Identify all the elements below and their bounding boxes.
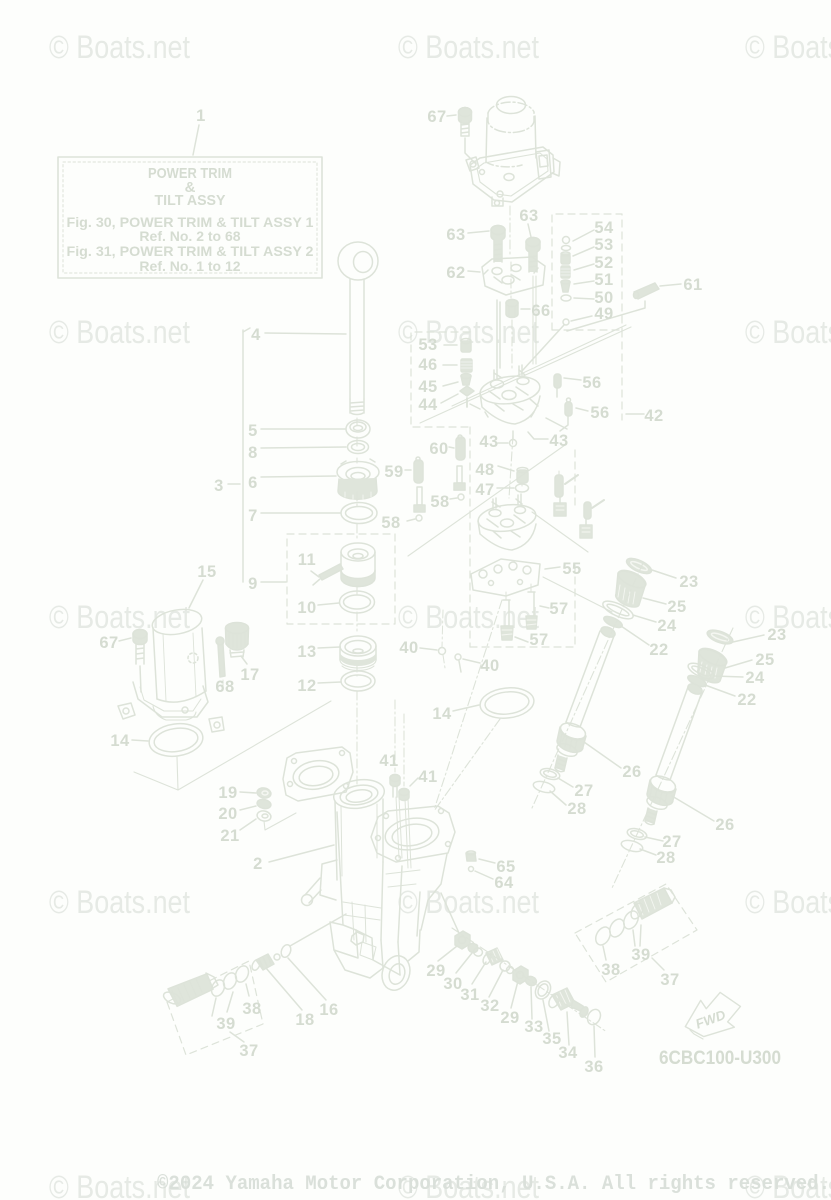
- svg-text:32: 32: [480, 997, 499, 1015]
- svg-text:© Boats.net: © Boats.net: [49, 599, 190, 635]
- svg-text:© Boats.net: © Boats.net: [49, 314, 190, 350]
- svg-text:9: 9: [248, 575, 258, 593]
- svg-text:19: 19: [218, 784, 237, 802]
- svg-text:58: 58: [381, 514, 400, 532]
- svg-text:© Boats.net: © Boats.net: [49, 29, 190, 65]
- svg-text:43: 43: [549, 432, 568, 450]
- svg-text:5: 5: [248, 422, 258, 440]
- svg-text:20: 20: [218, 805, 237, 823]
- svg-text:37: 37: [239, 1042, 258, 1060]
- svg-text:33: 33: [524, 1018, 543, 1036]
- svg-text:63: 63: [519, 207, 538, 225]
- svg-text:© Boats.net: © Boats.net: [745, 599, 831, 635]
- svg-text:42: 42: [644, 407, 663, 425]
- svg-text:67: 67: [427, 108, 446, 126]
- svg-text:34: 34: [558, 1044, 578, 1062]
- svg-text:60: 60: [429, 440, 448, 458]
- svg-text:67: 67: [99, 634, 118, 652]
- svg-text:24: 24: [657, 617, 677, 635]
- svg-text:26: 26: [622, 763, 641, 781]
- svg-text:3: 3: [214, 477, 224, 495]
- svg-text:63: 63: [446, 226, 465, 244]
- svg-text:57: 57: [529, 631, 548, 649]
- svg-text:40: 40: [480, 657, 499, 675]
- svg-text:61: 61: [683, 276, 702, 294]
- svg-text:15: 15: [197, 563, 216, 581]
- svg-text:66: 66: [531, 302, 550, 320]
- svg-text:55: 55: [562, 560, 581, 578]
- svg-text:40: 40: [399, 639, 418, 657]
- svg-text:43: 43: [479, 433, 498, 451]
- svg-text:14: 14: [110, 732, 130, 750]
- svg-text:2: 2: [253, 855, 263, 873]
- svg-text:52: 52: [594, 254, 613, 272]
- svg-text:31: 31: [460, 986, 479, 1004]
- svg-text:23: 23: [679, 573, 698, 591]
- svg-text:© Boats.net: © Boats.net: [398, 599, 539, 635]
- svg-text:62: 62: [446, 264, 465, 282]
- svg-text:56: 56: [582, 374, 601, 392]
- svg-text:27: 27: [574, 782, 593, 800]
- svg-text:38: 38: [601, 961, 620, 979]
- svg-text:48: 48: [475, 461, 494, 479]
- svg-text:39: 39: [631, 946, 650, 964]
- svg-text:11: 11: [298, 551, 316, 569]
- svg-text:©2024 Yamaha Motor Corporation: ©2024 Yamaha Motor Corporation, U.S.A. A…: [157, 1173, 830, 1196]
- svg-text:41: 41: [418, 768, 437, 786]
- svg-text:© Boats.net: © Boats.net: [398, 29, 539, 65]
- svg-text:1: 1: [196, 107, 206, 125]
- svg-text:© Boats.net: © Boats.net: [49, 884, 190, 920]
- svg-text:6CBC100-U300: 6CBC100-U300: [659, 1048, 781, 1069]
- svg-text:10: 10: [297, 599, 316, 617]
- svg-text:41: 41: [379, 752, 398, 770]
- svg-text:23: 23: [767, 626, 786, 644]
- svg-text:© Boats.net: © Boats.net: [745, 884, 831, 920]
- svg-text:17: 17: [240, 666, 259, 684]
- svg-text:18: 18: [295, 1011, 314, 1029]
- svg-text:6: 6: [248, 474, 258, 492]
- svg-text:22: 22: [737, 691, 756, 709]
- svg-text:53: 53: [594, 236, 613, 254]
- svg-text:© Boats.net: © Boats.net: [745, 29, 831, 65]
- svg-text:7: 7: [248, 507, 258, 525]
- svg-text:TILT ASSY: TILT ASSY: [155, 192, 226, 209]
- svg-text:53: 53: [418, 336, 437, 354]
- svg-text:26: 26: [715, 816, 734, 834]
- svg-text:29: 29: [500, 1009, 519, 1027]
- svg-text:24: 24: [745, 669, 765, 687]
- svg-text:44: 44: [418, 396, 438, 414]
- svg-text:39: 39: [216, 1015, 235, 1033]
- svg-text:64: 64: [494, 874, 514, 892]
- svg-text:49: 49: [594, 305, 613, 323]
- svg-text:58: 58: [430, 493, 449, 511]
- svg-text:57: 57: [549, 600, 568, 618]
- svg-text:Ref. No. 2 to 68: Ref. No. 2 to 68: [139, 228, 240, 244]
- svg-text:28: 28: [567, 800, 586, 818]
- svg-text:51: 51: [594, 271, 613, 289]
- svg-text:56: 56: [590, 404, 609, 422]
- svg-text:21: 21: [220, 827, 239, 845]
- svg-text:8: 8: [248, 444, 258, 462]
- svg-text:46: 46: [418, 356, 437, 374]
- svg-text:45: 45: [418, 378, 437, 396]
- svg-text:25: 25: [667, 598, 686, 616]
- svg-text:36: 36: [584, 1058, 603, 1076]
- svg-text:Ref. No. 1 to 12: Ref. No. 1 to 12: [139, 258, 240, 274]
- svg-text:© Boats.net: © Boats.net: [745, 314, 831, 350]
- svg-text:13: 13: [297, 643, 316, 661]
- svg-text:Fig. 31, POWER TRIM & TILT ASS: Fig. 31, POWER TRIM & TILT ASSY 2: [67, 243, 314, 259]
- svg-text:22: 22: [649, 641, 668, 659]
- svg-text:16: 16: [319, 1001, 338, 1019]
- svg-text:54: 54: [594, 219, 614, 237]
- svg-text:14: 14: [432, 705, 452, 723]
- svg-text:28: 28: [656, 849, 675, 867]
- svg-text:37: 37: [660, 971, 679, 989]
- svg-text:59: 59: [384, 463, 403, 481]
- svg-text:47: 47: [475, 481, 494, 499]
- svg-text:4: 4: [251, 326, 261, 344]
- svg-text:12: 12: [297, 677, 316, 695]
- svg-text:25: 25: [755, 651, 774, 669]
- svg-text:38: 38: [242, 1000, 261, 1018]
- svg-text:68: 68: [215, 678, 234, 696]
